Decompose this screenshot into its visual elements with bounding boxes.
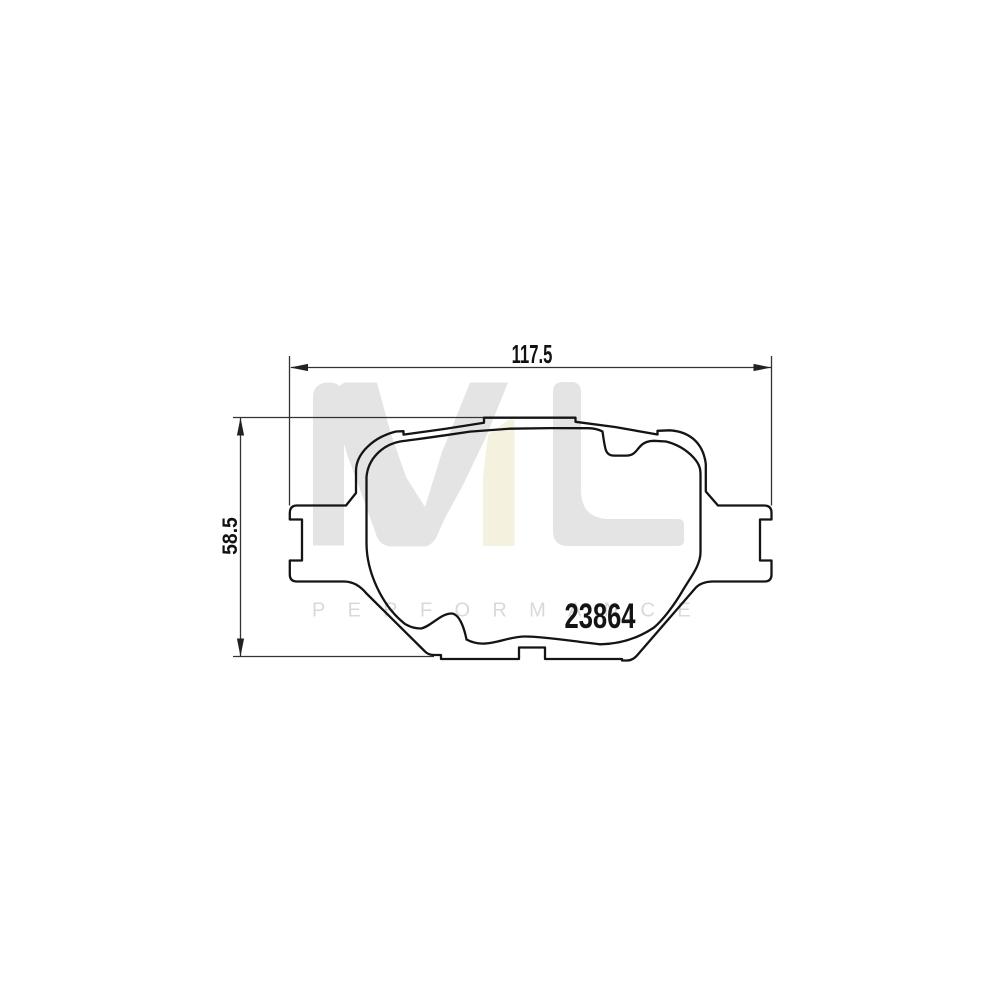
svg-text:23864: 23864 bbox=[564, 597, 635, 636]
svg-text:PERFORMANCE: PERFORMANCE bbox=[312, 600, 713, 622]
svg-text:117.5: 117.5 bbox=[512, 339, 553, 369]
svg-text:58.5: 58.5 bbox=[218, 517, 242, 555]
